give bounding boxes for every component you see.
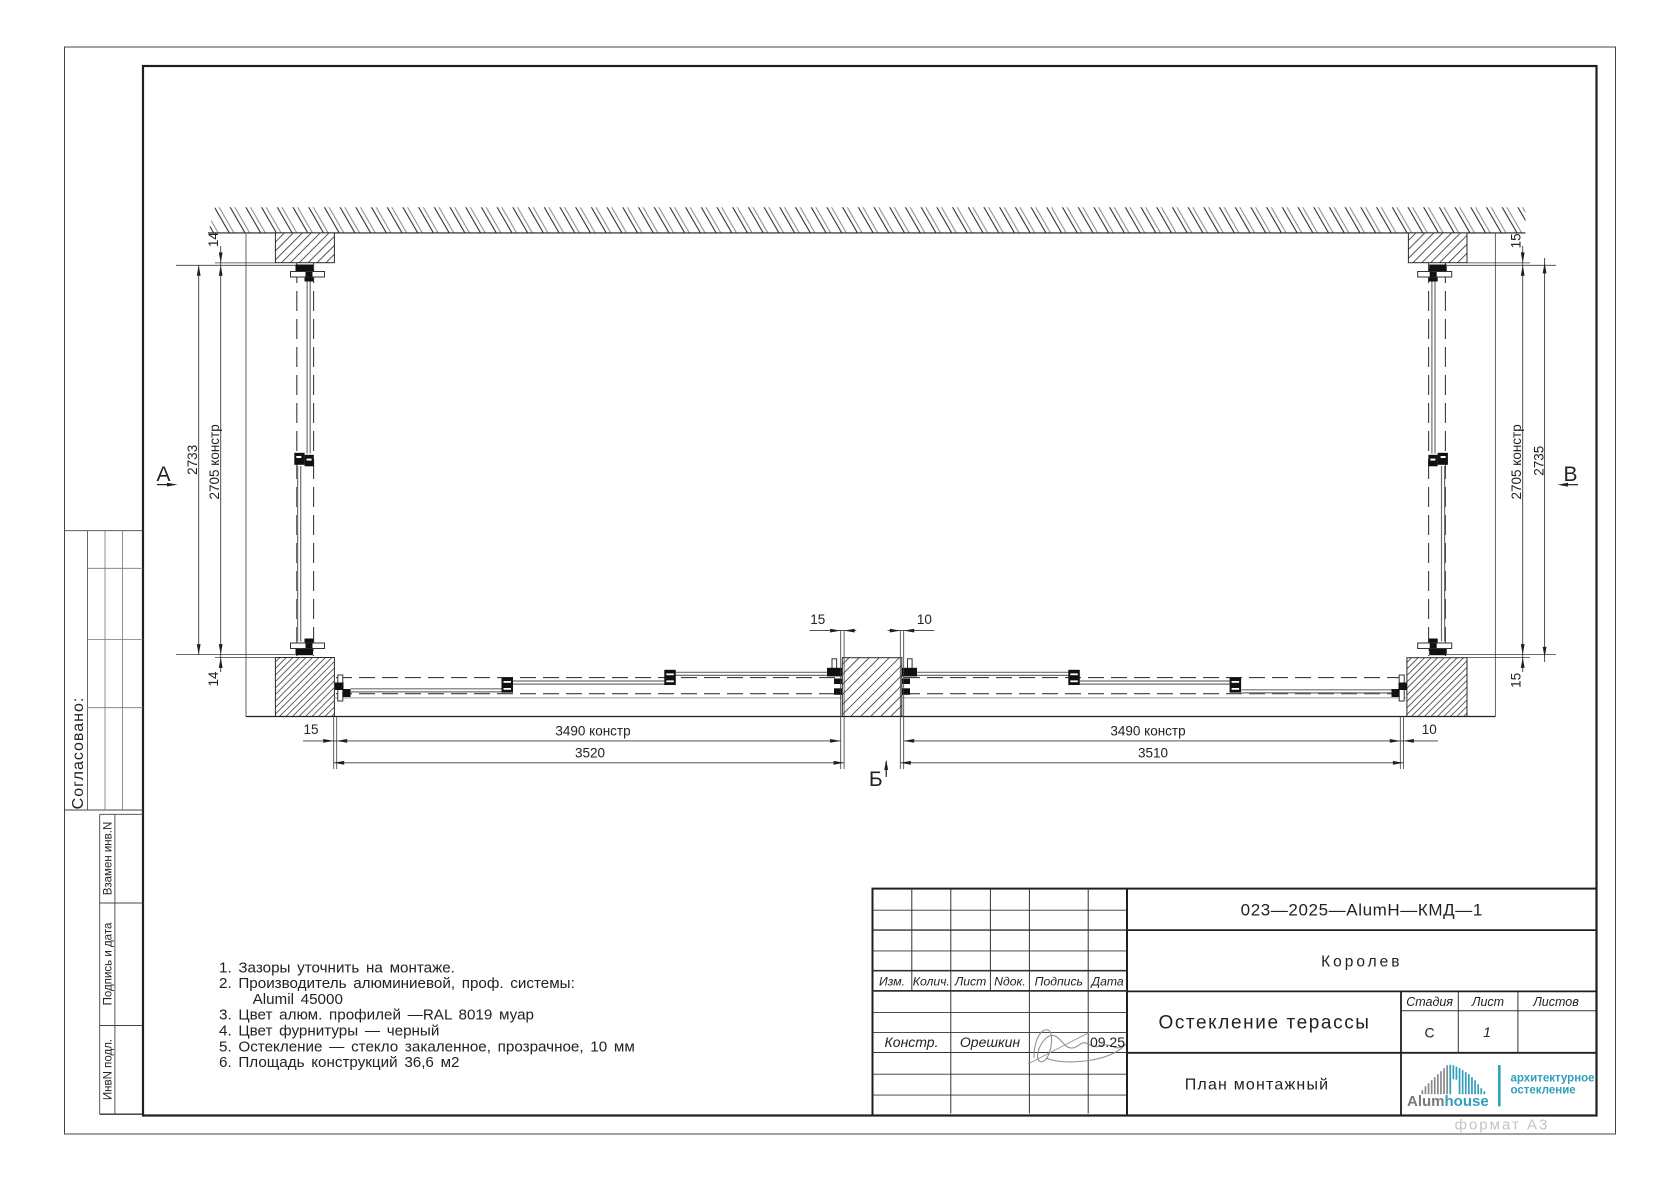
svg-text:остекление: остекление bbox=[1511, 1085, 1576, 1097]
svg-text:3490 констр: 3490 констр bbox=[555, 723, 630, 738]
svg-text:Стадия: Стадия bbox=[1406, 995, 1453, 1009]
svg-text:10: 10 bbox=[1422, 722, 1437, 737]
svg-text:Alumil 45000: Alumil 45000 bbox=[219, 991, 343, 1008]
svg-text:2705 констр: 2705 констр bbox=[207, 424, 222, 499]
svg-text:15: 15 bbox=[303, 722, 318, 737]
svg-text:10: 10 bbox=[917, 612, 932, 627]
svg-text:3490 констр: 3490 констр bbox=[1110, 723, 1185, 738]
svg-text:2. Производитель алюминиевой,: 2. Производитель алюминиевой, проф. сист… bbox=[219, 975, 575, 992]
svg-text:1. Зазоры уточнить на монта: 1. Зазоры уточнить на монтаже. bbox=[219, 959, 455, 976]
svg-text:Дата: Дата bbox=[1090, 974, 1124, 988]
svg-text:Взамен инв.N: Взамен инв.N bbox=[102, 822, 114, 896]
svg-text:15: 15 bbox=[1509, 673, 1524, 688]
svg-text:В: В bbox=[1563, 463, 1577, 486]
svg-text:023—2025—AlumH—КМД—1: 023—2025—AlumH—КМД—1 bbox=[1241, 901, 1483, 920]
svg-text:Подпись: Подпись bbox=[1035, 974, 1083, 988]
svg-text:Nдок.: Nдок. bbox=[994, 974, 1025, 988]
svg-text:Орешкин: Орешкин bbox=[960, 1034, 1020, 1050]
svg-text:4. Цвет фурнитуры — черный: 4. Цвет фурнитуры — черный bbox=[219, 1023, 439, 1040]
svg-text:архитектурное: архитектурное bbox=[1511, 1073, 1595, 1085]
svg-text:Лист: Лист bbox=[1471, 995, 1504, 1009]
svg-text:1: 1 bbox=[1483, 1024, 1491, 1040]
svg-text:5. Остекление — стекло зака: 5. Остекление — стекло закаленное, прозр… bbox=[219, 1038, 635, 1055]
svg-text:Колич.: Колич. bbox=[913, 974, 950, 988]
svg-text:6. Площадь конструкций 36,6: 6. Площадь конструкций 36,6 м2 bbox=[219, 1054, 459, 1071]
svg-text:15: 15 bbox=[1509, 233, 1524, 248]
svg-text:С: С bbox=[1425, 1025, 1435, 1041]
svg-text:ИнвN подл.: ИнвN подл. bbox=[102, 1039, 114, 1100]
svg-text:14: 14 bbox=[206, 232, 221, 248]
svg-text:2733: 2733 bbox=[185, 445, 200, 475]
svg-text:Согласовано:: Согласовано: bbox=[70, 697, 87, 810]
svg-text:Лист: Лист bbox=[954, 974, 986, 988]
svg-text:2705 констр: 2705 констр bbox=[1509, 424, 1524, 499]
svg-text:Alumhouse: Alumhouse bbox=[1407, 1093, 1489, 1110]
svg-text:09.25: 09.25 bbox=[1090, 1034, 1125, 1050]
svg-text:15: 15 bbox=[810, 612, 825, 627]
svg-text:14: 14 bbox=[206, 671, 221, 687]
svg-text:формат А3: формат А3 bbox=[1455, 1117, 1550, 1134]
svg-text:Б: Б bbox=[869, 768, 883, 791]
svg-text:План монтажный: План монтажный bbox=[1185, 1077, 1330, 1094]
svg-text:Подпись и дата: Подпись и дата bbox=[102, 922, 114, 1005]
svg-text:Листов: Листов bbox=[1532, 995, 1579, 1009]
svg-text:Остекление терассы: Остекление терассы bbox=[1158, 1013, 1370, 1034]
svg-text:Констр.: Констр. bbox=[885, 1034, 939, 1050]
svg-text:А: А bbox=[156, 463, 170, 486]
svg-text:Королев: Королев bbox=[1321, 954, 1402, 971]
svg-text:3510: 3510 bbox=[1138, 745, 1168, 760]
svg-text:Изм.: Изм. bbox=[879, 974, 905, 988]
svg-text:3520: 3520 bbox=[575, 745, 605, 760]
svg-text:2735: 2735 bbox=[1532, 446, 1547, 476]
svg-text:3. Цвет алюм. профилей —RAL: 3. Цвет алюм. профилей —RAL 8019 муар bbox=[219, 1007, 534, 1024]
